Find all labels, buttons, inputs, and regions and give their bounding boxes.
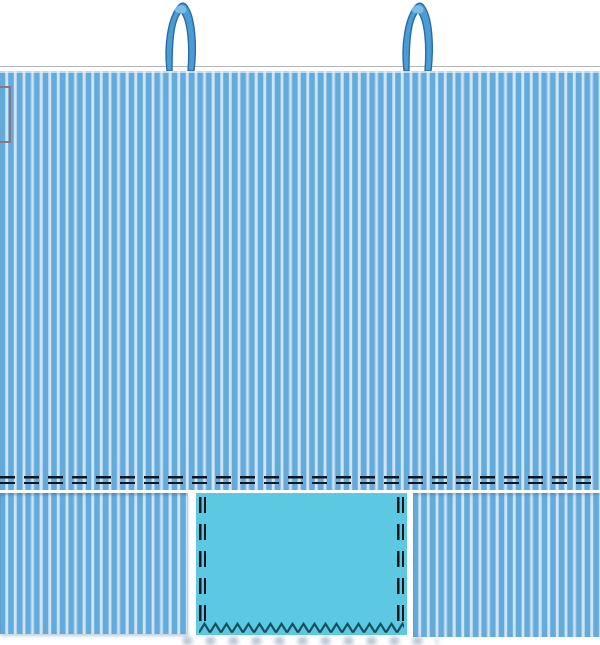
pocket-stitch-line-right [397,497,404,629]
bottom-panel-right-striped [413,493,600,637]
bag-handle-right-icon [396,1,440,72]
bottom-cutoff-marks [183,637,438,645]
edge-marker-rectangle [0,86,11,143]
pocket-panel [196,493,407,635]
bottom-panel-left-striped [0,493,188,634]
pocket-stitch-line-left [199,497,206,629]
bag-handle-left-icon [159,1,203,72]
bag-top-edge-line [0,66,600,67]
bag-body-striped-panel [0,71,600,490]
horizontal-stitch-line [0,476,600,484]
pattern-canvas [0,0,600,645]
zigzag-overlock-edge-icon [199,622,404,634]
